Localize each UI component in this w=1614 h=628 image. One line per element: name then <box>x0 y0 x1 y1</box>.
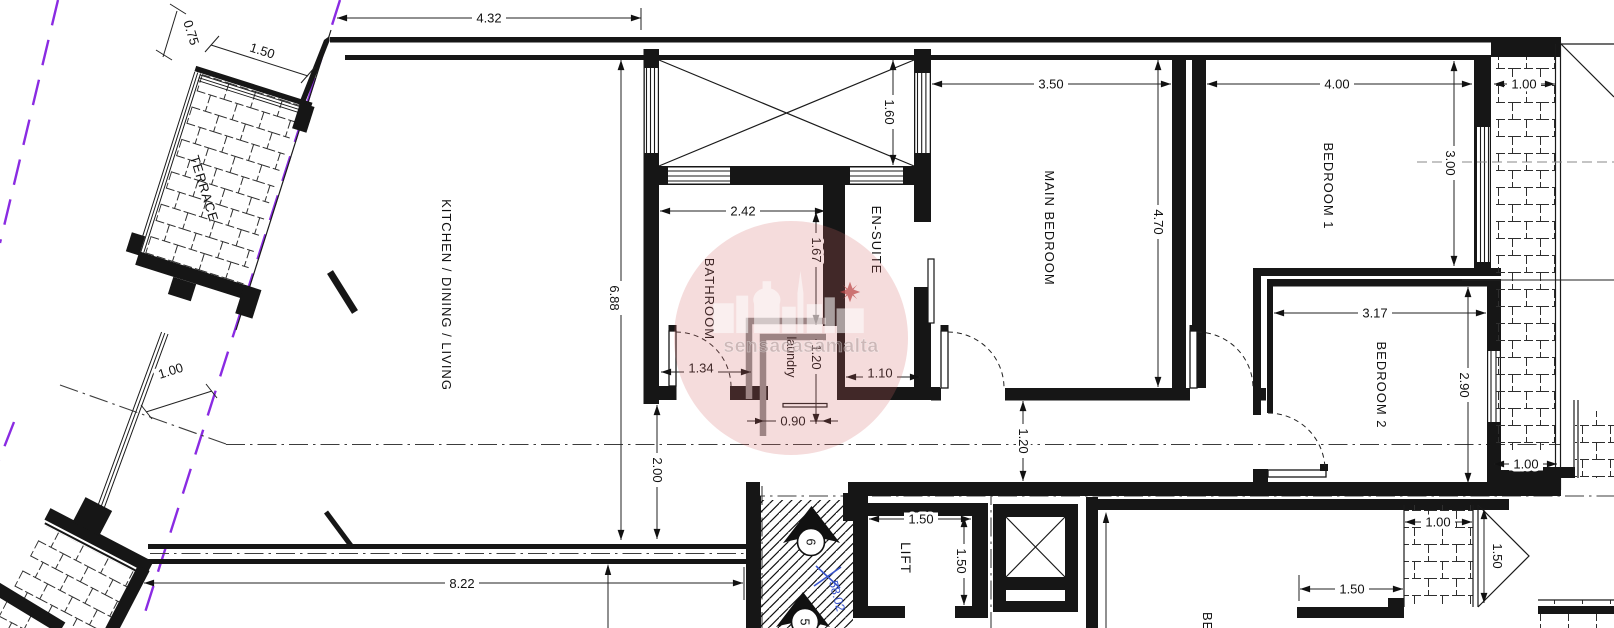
svg-text:2.00: 2.00 <box>650 457 665 482</box>
svg-text:4.32: 4.32 <box>476 11 501 26</box>
svg-text:1.50: 1.50 <box>954 548 969 573</box>
svg-text:3.17: 3.17 <box>1362 306 1387 321</box>
svg-text:1.00: 1.00 <box>1513 457 1538 472</box>
svg-text:MAIN BEDROOM: MAIN BEDROOM <box>1042 170 1057 285</box>
svg-text:BEDROOM 2: BEDROOM 2 <box>1374 341 1389 428</box>
svg-text:1.50: 1.50 <box>1490 543 1505 568</box>
svg-text:8.22: 8.22 <box>449 576 474 591</box>
svg-text:2.42: 2.42 <box>730 204 755 219</box>
svg-text:2.90: 2.90 <box>1457 372 1472 397</box>
svg-text:1.60: 1.60 <box>882 99 897 124</box>
svg-text:6.88: 6.88 <box>607 285 622 310</box>
svg-text:4.00: 4.00 <box>1324 77 1349 92</box>
svg-text:1.50: 1.50 <box>1339 582 1364 597</box>
svg-text:3.50: 3.50 <box>1038 77 1063 92</box>
svg-text:KITCHEN / DINING / LIVING: KITCHEN / DINING / LIVING <box>439 199 454 391</box>
svg-text:BEDROOM 1: BEDROOM 1 <box>1321 142 1336 229</box>
svg-text:1.20: 1.20 <box>1016 428 1031 453</box>
svg-text:1.50: 1.50 <box>908 512 933 527</box>
svg-text:BED: BED <box>1200 612 1215 628</box>
svg-text:1.00: 1.00 <box>1511 77 1536 92</box>
svg-text:LIFT: LIFT <box>898 542 913 574</box>
svg-text:3.00: 3.00 <box>1443 150 1458 175</box>
svg-text:6: 6 <box>804 539 818 546</box>
svg-text:4.70: 4.70 <box>1151 209 1166 234</box>
svg-text:sensacasamalta: sensacasamalta <box>723 335 878 357</box>
svg-text:1.00: 1.00 <box>1425 515 1450 530</box>
svg-text:5: 5 <box>798 619 812 626</box>
